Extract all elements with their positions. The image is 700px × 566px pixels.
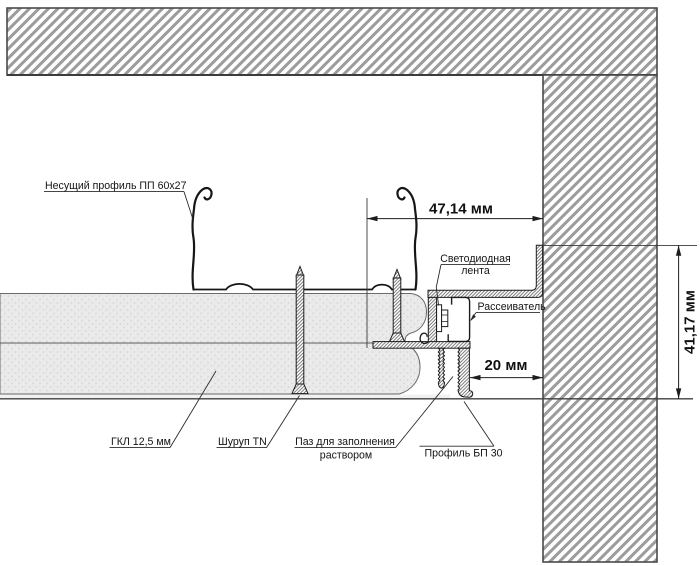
gkl-lower-layer: [0, 343, 420, 394]
ceiling-section-drawing: 47,14 мм 20 мм 41,17 мм Несущий профиль …: [0, 0, 700, 566]
bp30-leg: [458, 348, 473, 397]
label-bp-profile: Профиль БП 30: [420, 402, 503, 460]
gkl-upper-layer: [0, 294, 427, 344]
pp-carrier-profile: [193, 188, 417, 289]
svg-text:ГКЛ 12,5 мм: ГКЛ 12,5 мм: [111, 436, 171, 448]
svg-text:Рассеиватель: Рассеиватель: [478, 301, 547, 313]
wall: [543, 75, 657, 562]
svg-text:Шуруп TN: Шуруп TN: [218, 436, 267, 448]
diffuser-channel: [448, 297, 469, 341]
dimension-bottom-gap-text: 20 мм: [484, 357, 527, 374]
concrete-slab: [7, 8, 657, 75]
svg-text:Паз для заполнения: Паз для заполнения: [295, 436, 395, 448]
technical-drawing-sheet: 47,14 мм 20 мм 41,17 мм Несущий профиль …: [0, 0, 700, 566]
svg-text:Профиль БП 30: Профиль БП 30: [425, 447, 503, 459]
svg-text:Светодиодная: Светодиодная: [440, 253, 511, 265]
svg-text:раствором: раствором: [320, 449, 372, 461]
dimension-side-height-text: 41,17 мм: [682, 290, 699, 354]
led-strip: [437, 305, 448, 332]
dimension-top-width-text: 47,14 мм: [429, 201, 493, 218]
dimension-bottom-gap: 20 мм: [470, 357, 543, 380]
label-carrier-profile: Несущий профиль ПП 60x27: [44, 180, 193, 220]
bp30-serrated-strip: [438, 348, 444, 388]
svg-text:лента: лента: [461, 265, 490, 277]
label-screw: Шуруп TN: [217, 396, 300, 449]
svg-text:Несущий профиль ПП 60x27: Несущий профиль ПП 60x27: [45, 180, 187, 192]
label-diffuser: Рассеиватель: [470, 301, 546, 321]
bp30-web: [428, 297, 436, 342]
